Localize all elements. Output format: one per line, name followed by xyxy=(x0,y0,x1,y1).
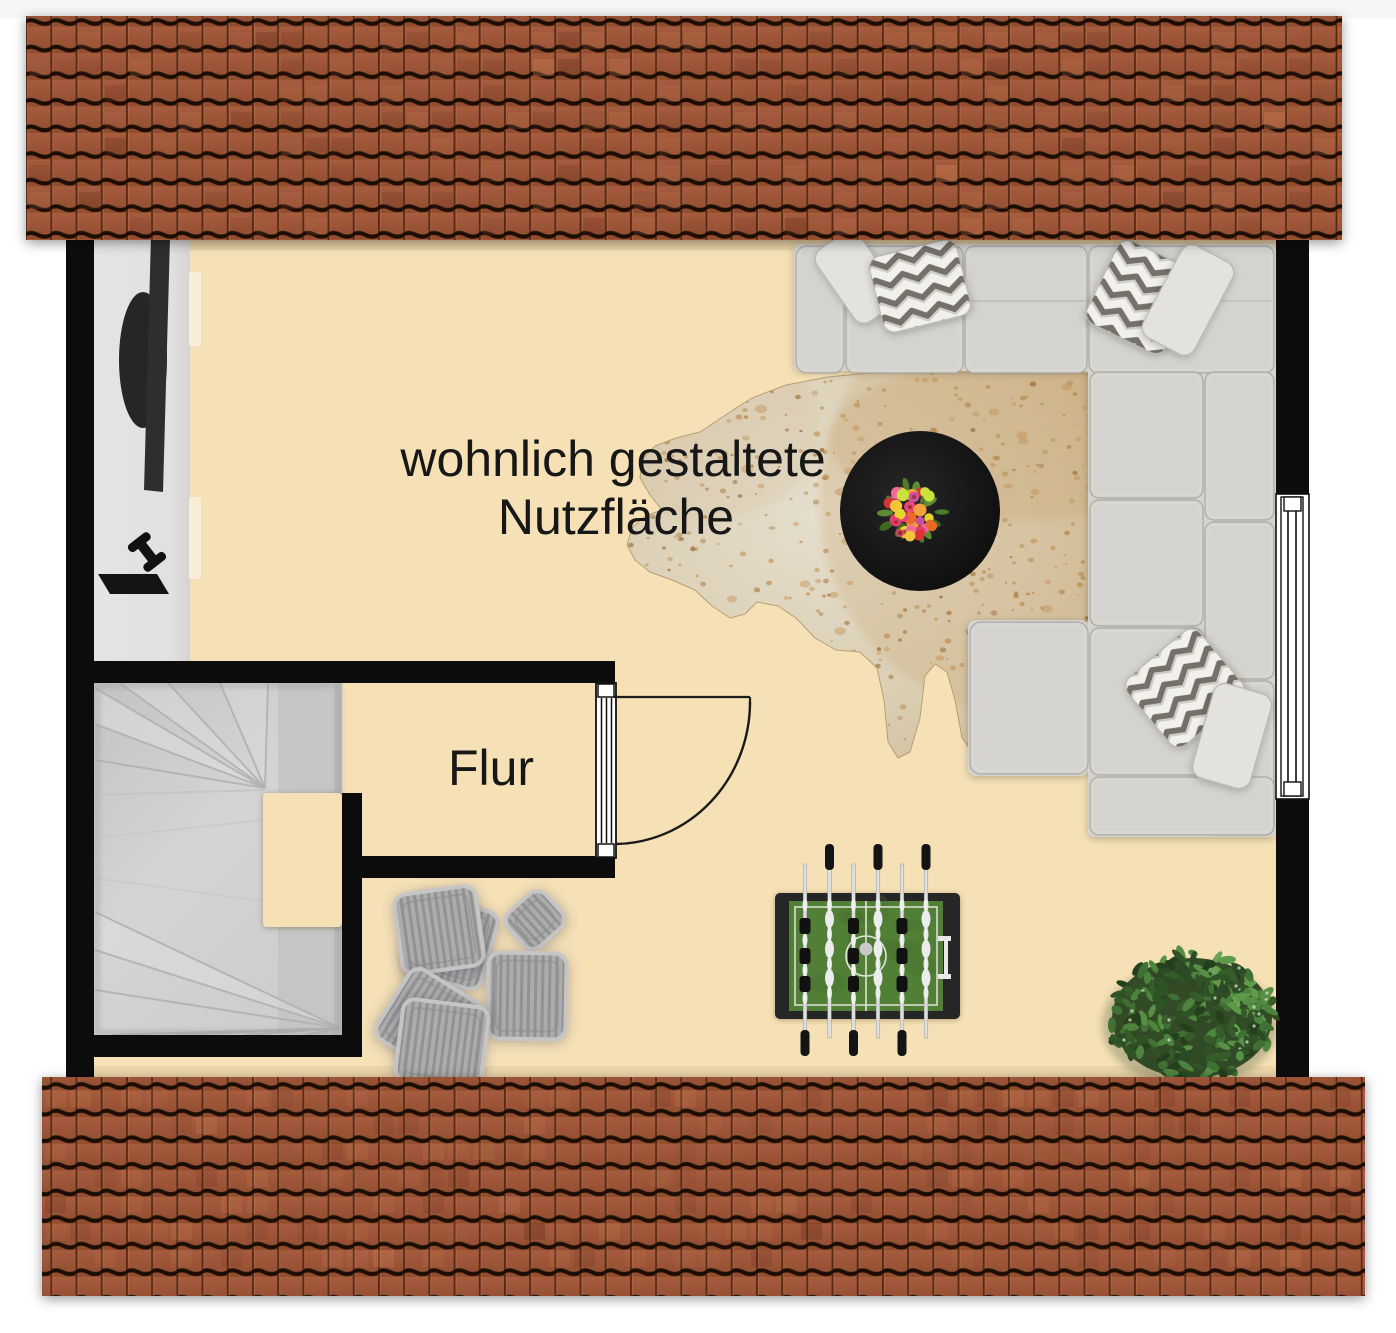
svg-text:wohnlich gestaltete: wohnlich gestaltete xyxy=(399,431,825,487)
svg-text:Flur: Flur xyxy=(448,740,534,796)
svg-text:Nutzfläche: Nutzfläche xyxy=(498,489,734,545)
